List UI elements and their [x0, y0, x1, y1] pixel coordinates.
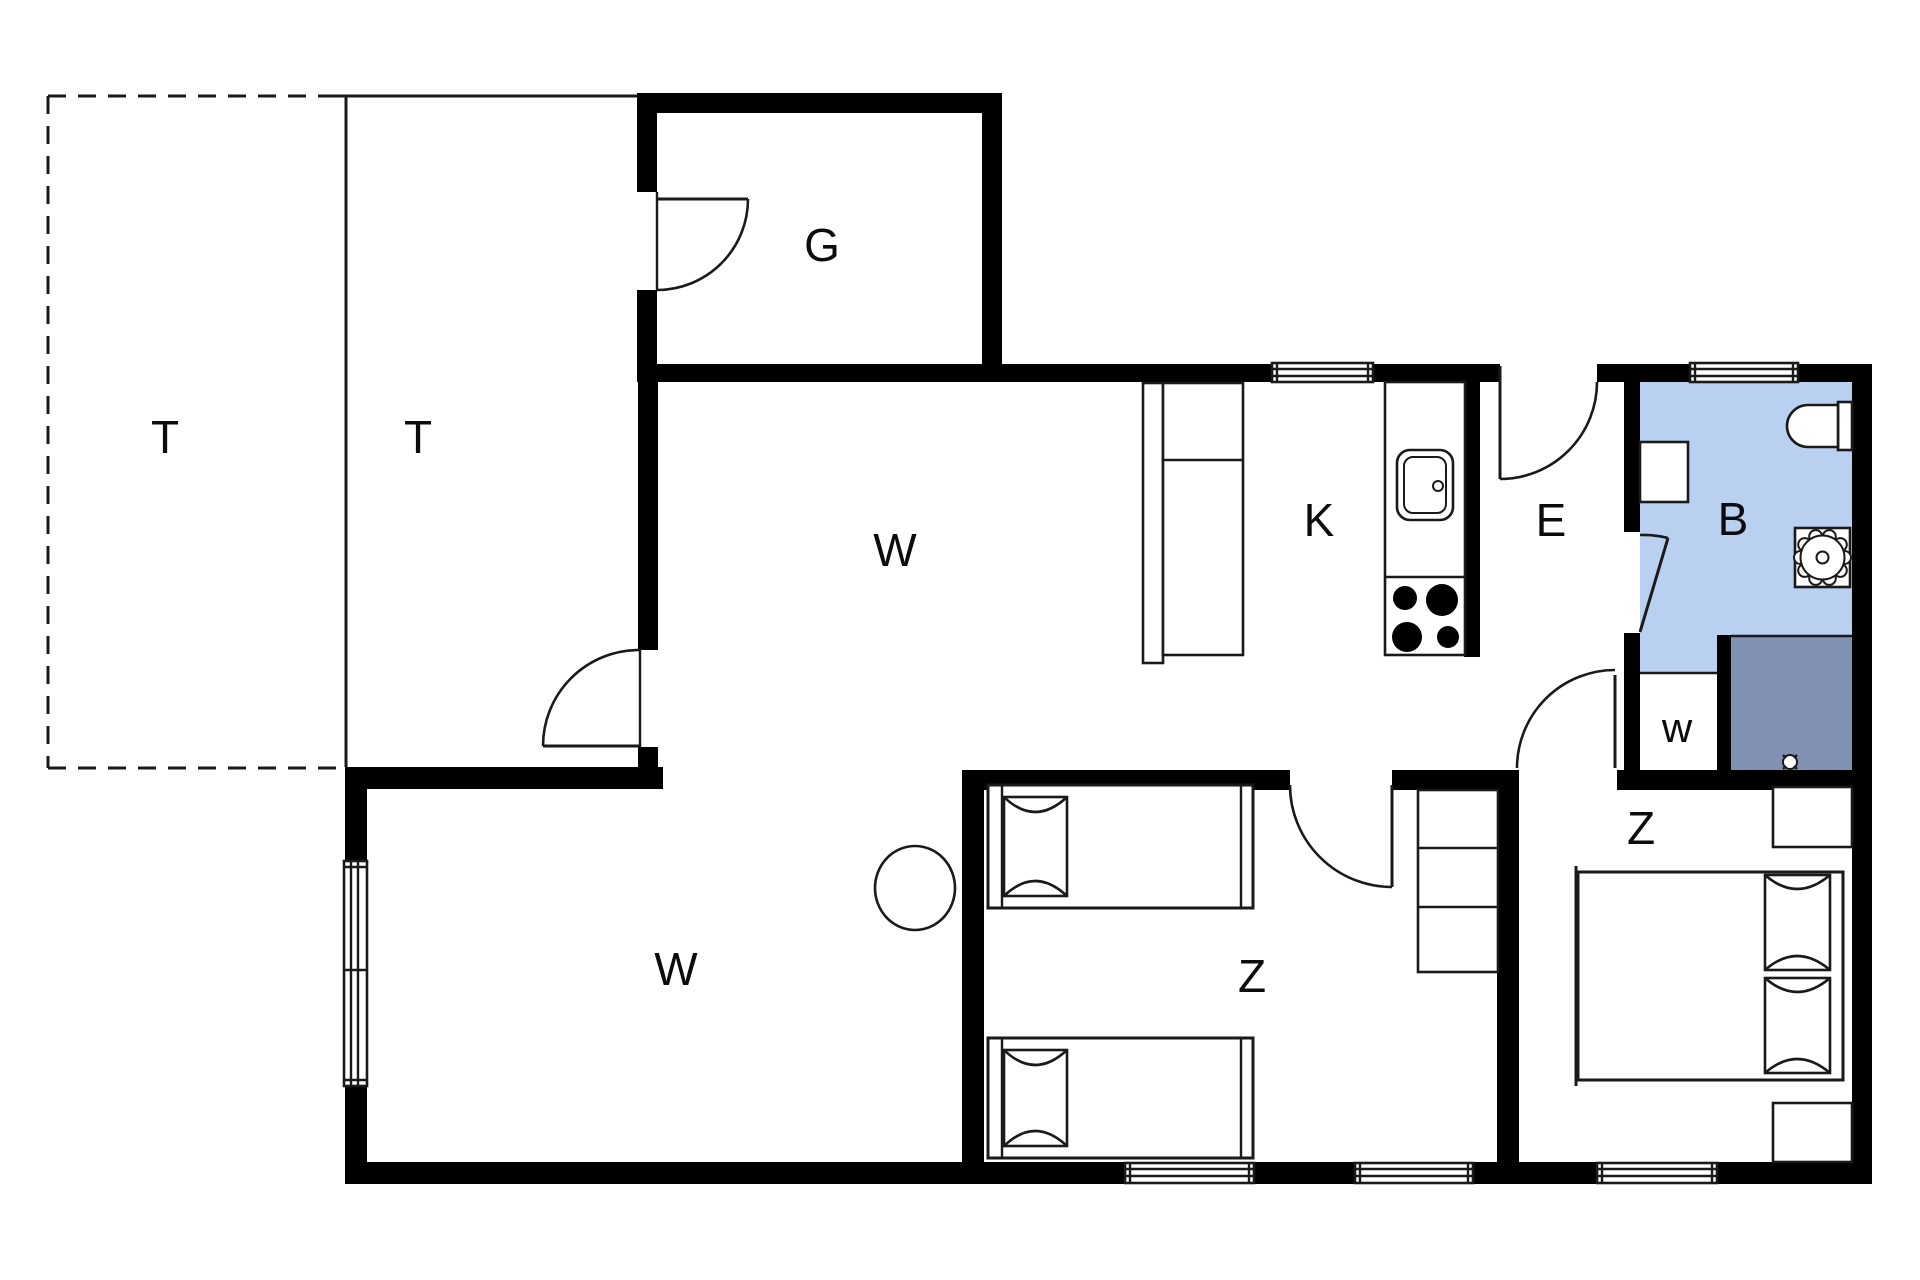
- window-bathroom: [1690, 363, 1798, 382]
- room-label-terrace-covered: T: [404, 411, 432, 463]
- room-label-utility-closet: w: [1661, 704, 1693, 751]
- floor-plan-drawing: T T G W K E B w W Z Z: [0, 0, 1920, 1280]
- tall-cabinet-side: [1143, 383, 1163, 663]
- nightstand-1: [1773, 787, 1852, 847]
- room-label-living-upper: W: [873, 524, 917, 576]
- toilet: [1787, 402, 1852, 450]
- room-label-kitchen: K: [1304, 494, 1335, 546]
- double-bed: [1576, 866, 1843, 1086]
- window-bedroom-middle-1: [1125, 1163, 1254, 1183]
- tall-cabinet: [1163, 383, 1243, 655]
- room-label-bedroom-middle: Z: [1238, 950, 1266, 1002]
- floor-plan-page: T T G W K E B w W Z Z: [0, 0, 1920, 1280]
- kitchen-sink: [1397, 450, 1453, 520]
- window-bedroom-middle-2: [1355, 1163, 1473, 1183]
- window-living-left: [344, 861, 367, 1086]
- window-bedroom-right: [1597, 1163, 1717, 1183]
- single-bed-1: [988, 785, 1253, 908]
- washbasin: [1794, 528, 1851, 587]
- window-kitchen: [1272, 363, 1373, 382]
- room-label-bedroom-right: Z: [1627, 802, 1655, 854]
- shower: [1731, 635, 1852, 770]
- bathroom-cabinet: [1640, 442, 1688, 502]
- dresser: [1418, 790, 1498, 972]
- nightstand-2: [1773, 1103, 1852, 1162]
- room-label-annex: G: [804, 219, 840, 271]
- room-label-entry: E: [1536, 494, 1567, 546]
- floor-drain: [1783, 755, 1797, 769]
- room-label-living-lower: W: [654, 943, 698, 995]
- round-table: [875, 846, 955, 930]
- room-label-terrace-open: T: [151, 411, 179, 463]
- room-label-bathroom: B: [1718, 493, 1749, 545]
- single-bed-2: [988, 1038, 1253, 1158]
- bathroom-floor-nook: [1640, 635, 1717, 673]
